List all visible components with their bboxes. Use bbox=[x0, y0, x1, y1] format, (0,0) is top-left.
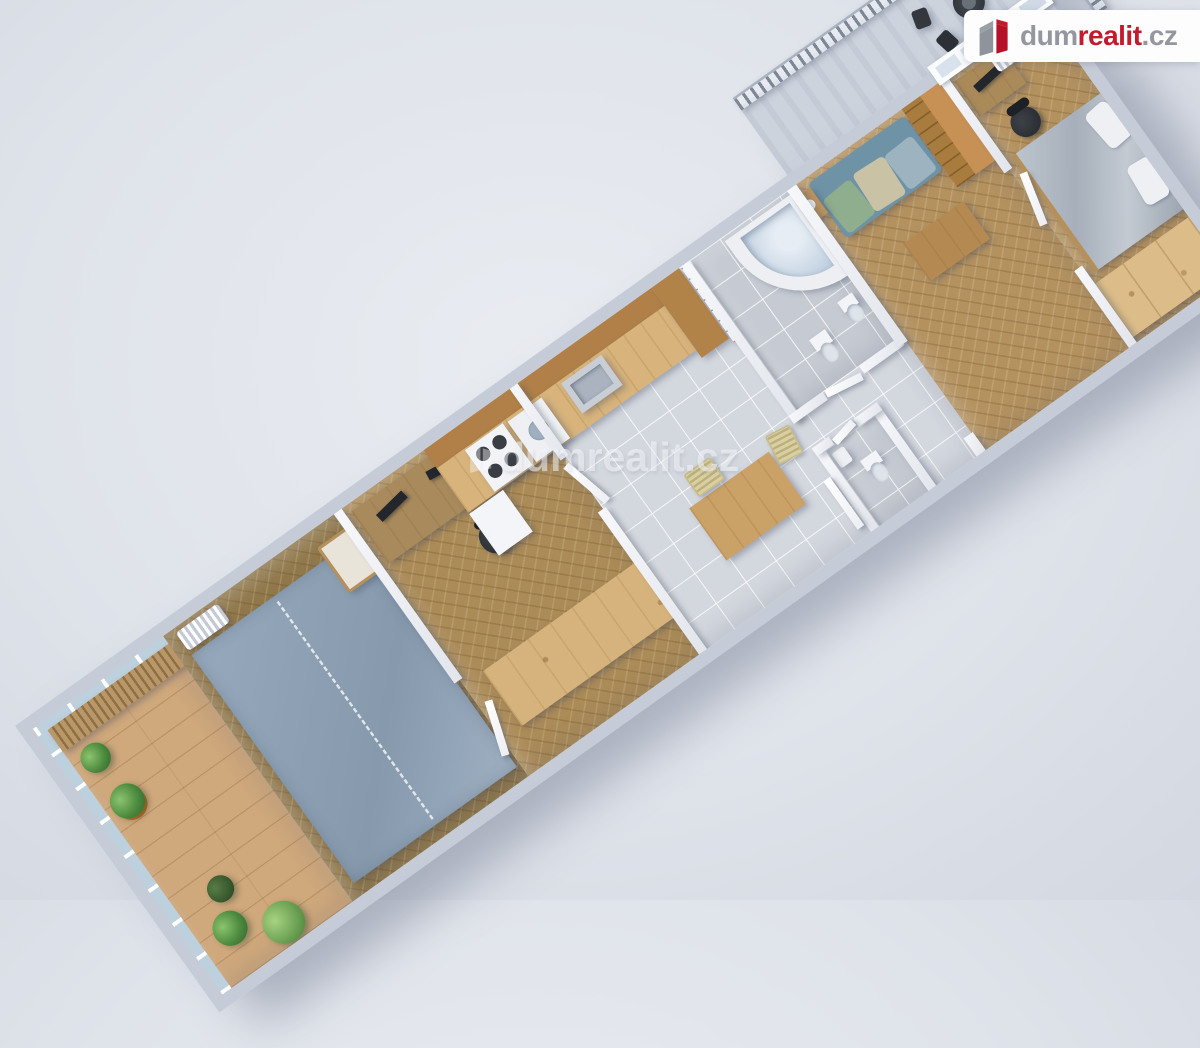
pillow bbox=[1083, 99, 1133, 151]
apartment-interior bbox=[33, 10, 1200, 995]
logo-highlight: realit bbox=[1078, 20, 1142, 51]
logo-card: dumrealit.cz bbox=[964, 10, 1200, 62]
pillow bbox=[1125, 155, 1171, 207]
burner bbox=[473, 444, 493, 464]
burner bbox=[485, 461, 505, 481]
burner bbox=[489, 432, 509, 452]
logo-suffix: .cz bbox=[1142, 20, 1178, 51]
floorplan-scene bbox=[0, 0, 1200, 1048]
balcony-chair bbox=[911, 7, 933, 31]
carpet-stripe bbox=[277, 601, 434, 820]
apartment-outline bbox=[15, 0, 1200, 1012]
logo-text: dumrealit.cz bbox=[1020, 20, 1177, 52]
dumrealit-cube-icon bbox=[977, 16, 1011, 56]
glazing-frame bbox=[33, 722, 232, 994]
logo-prefix: dum bbox=[1020, 20, 1078, 51]
burner bbox=[502, 449, 522, 469]
